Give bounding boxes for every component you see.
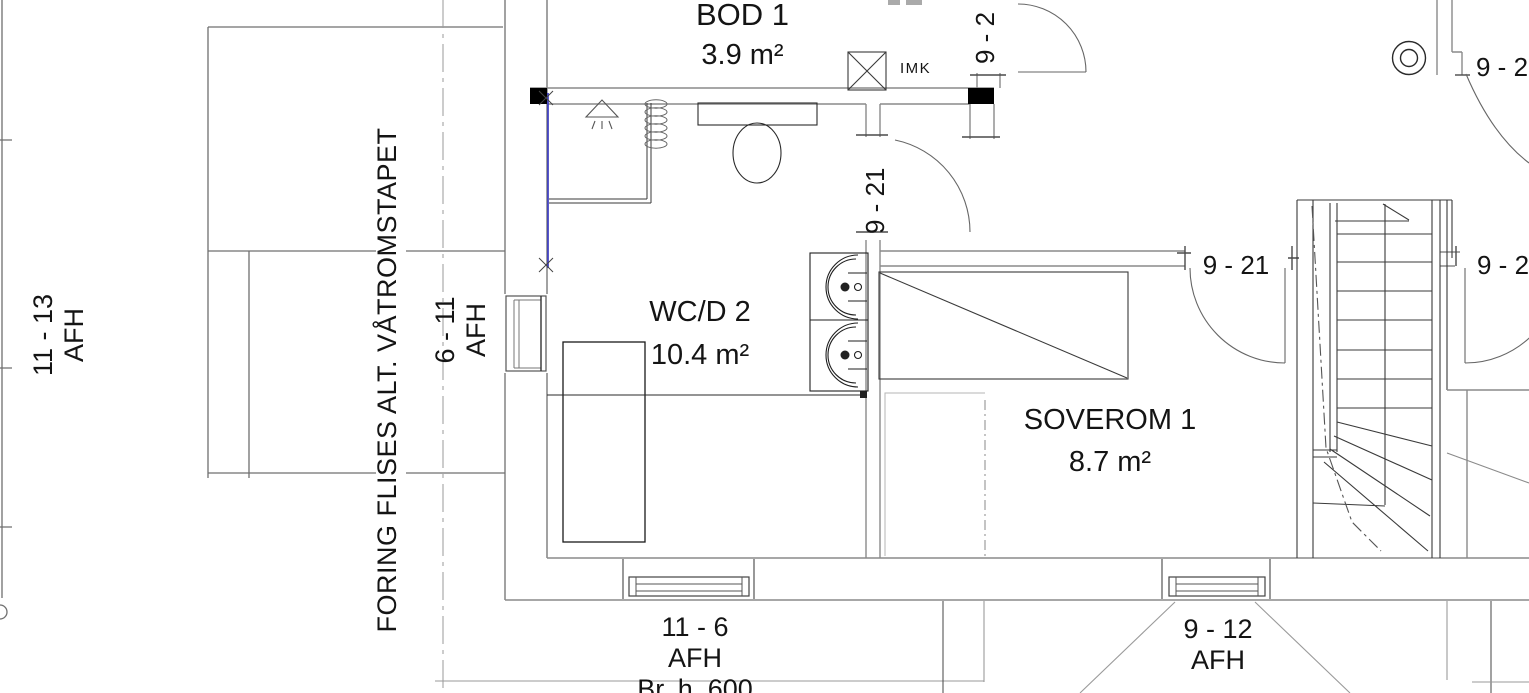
imk-label: IMK <box>900 60 931 77</box>
hall-closet-walls <box>1447 390 1529 558</box>
room-label-bod1: BOD 1 <box>655 0 830 33</box>
window-left-wall <box>503 294 549 373</box>
shower-enclosure <box>549 103 651 203</box>
window-bottom-right <box>1162 559 1270 599</box>
window-label-left-outer: 11 - 13 AFH <box>28 210 90 460</box>
stair-direction-arrow <box>1335 204 1409 221</box>
door-label-top: 9 - 2 <box>970 0 1001 64</box>
window-label-left-wall: 6 - 11 AFH <box>430 260 492 400</box>
window-label-bottom-left: 11 - 6 AFH Br. h. 600 <box>612 612 778 693</box>
door-label-top-right: 9 - 2 <box>1476 52 1529 83</box>
right-door-wall-stub <box>1440 246 1460 266</box>
room-area-bod1: 3.9 m² <box>655 39 830 72</box>
wardrobe <box>879 272 1128 379</box>
floor-plan: BOD 1 3.9 m² WC/D 2 10.4 m² SOVEROM 1 8.… <box>0 0 1529 693</box>
door-top <box>1018 4 1086 72</box>
lower-storey-lines <box>435 601 1529 693</box>
door-label-wc: 9 - 21 <box>860 134 891 234</box>
bathroom-north-wall <box>530 88 994 104</box>
door-right <box>1465 268 1529 363</box>
window-label-bottom-right: 9 - 12 AFH <box>1132 614 1304 676</box>
wall-end-cap <box>968 88 994 104</box>
window-bottom-left <box>623 559 754 599</box>
toilet <box>698 103 817 183</box>
room-area-wcd2: 10.4 m² <box>605 339 795 372</box>
staircase <box>1297 200 1452 558</box>
left-edge-wall <box>0 0 12 619</box>
reserved-space <box>885 393 985 558</box>
top-right-wall <box>1437 0 1470 75</box>
annex-outline <box>208 27 505 478</box>
junction-x-markers <box>539 91 553 272</box>
room-label-soverom1: SOVEROM 1 <box>1005 404 1215 437</box>
door-top-right <box>1466 74 1529 163</box>
door-label-soverom: 9 - 21 <box>1190 250 1282 281</box>
pipe-symbol-icon <box>1393 42 1426 75</box>
bathtub <box>563 342 645 542</box>
room-label-wcd2: WC/D 2 <box>605 296 795 329</box>
cut-off-text-fragment <box>888 0 922 5</box>
wall-note: FORING FLISES ALT. VÅTROMSTAPET <box>372 115 403 645</box>
landing-wall <box>962 73 1006 139</box>
door-soverom <box>1190 268 1285 363</box>
wet-zone-line <box>547 391 867 398</box>
imk-vent-icon <box>848 52 886 90</box>
door-label-right: 9 - 2 <box>1477 250 1529 281</box>
coil-symbol <box>645 100 667 148</box>
room-area-soverom1: 8.7 m² <box>1005 446 1215 479</box>
door-wc <box>895 140 970 232</box>
double-washbasin <box>810 253 868 391</box>
